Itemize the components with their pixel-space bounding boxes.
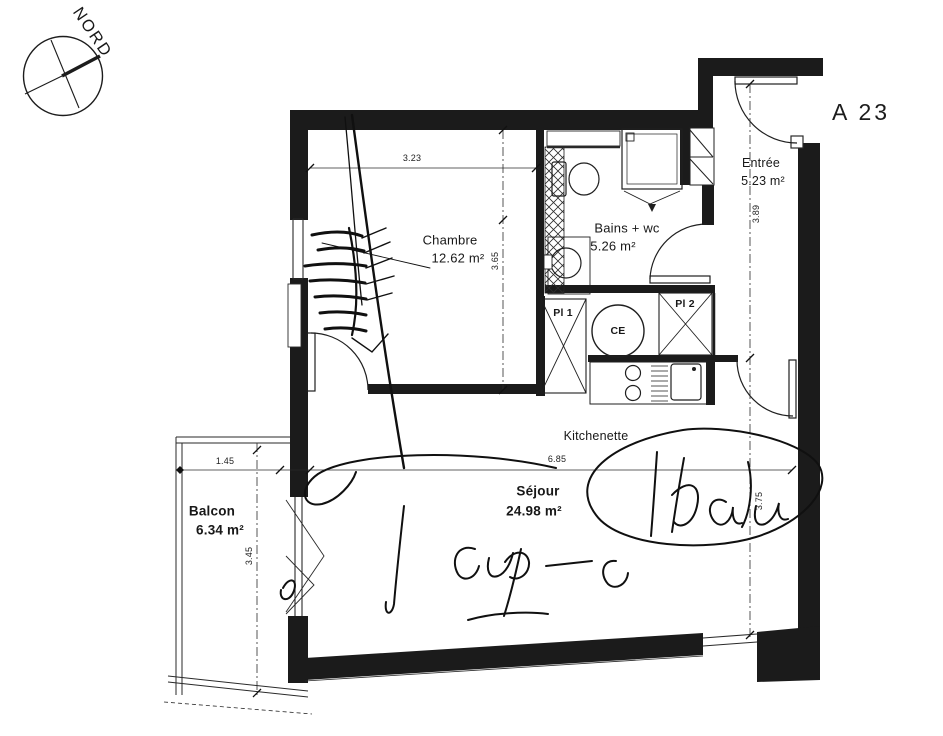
sink-icon [671,364,701,400]
room-label-bains: Bains + wc [594,221,659,236]
burner-icon [626,386,641,401]
floor-plan-page: NORD A 23 Chambre 12.62 m² Bains + wc 5.… [0,0,943,736]
room-area-chambre: 12.62 m² [432,251,485,266]
room-label-entree: Entrée [742,156,780,170]
room-label-sejour: Séjour [516,484,559,499]
unit-label: A 23 [832,99,890,126]
dim-entree-height: 3.89 [751,205,761,223]
room-area-bains: 5.26 m² [590,239,635,254]
room-area-entree: 5.23 m² [741,174,785,188]
dim-balcon-height: 3.45 [244,547,254,565]
dim-sejour-width: 6.85 [548,454,566,464]
burner-icon [626,366,641,381]
technical-shaft [690,128,714,185]
water-heater-label: CE [611,325,626,337]
room-label-kitchenette: Kitchenette [564,429,629,443]
bathroom-fixtures [544,129,682,294]
drainer-lines [651,366,668,401]
floor-plan-drawing [0,0,943,736]
counter-outline [590,362,707,404]
balcony-sliding-door [286,497,324,616]
closet-label-pl1: Pl 1 [553,307,572,319]
dim-balcon-width: 1.45 [216,456,234,466]
shower-icon [622,129,682,189]
kitchenette-fixtures [590,362,707,404]
dim-sejour-height: 3.75 [754,492,764,510]
room-area-sejour: 24.98 m² [506,504,562,519]
dim-chambre-width: 3.23 [403,153,421,163]
room-label-balcon: Balcon [189,504,235,519]
closet-label-pl2: Pl 2 [675,298,694,310]
dim-chambre-height: 3.65 [490,252,500,270]
room-label-chambre: Chambre [423,233,478,248]
room-area-balcon: 6.34 m² [196,523,244,538]
